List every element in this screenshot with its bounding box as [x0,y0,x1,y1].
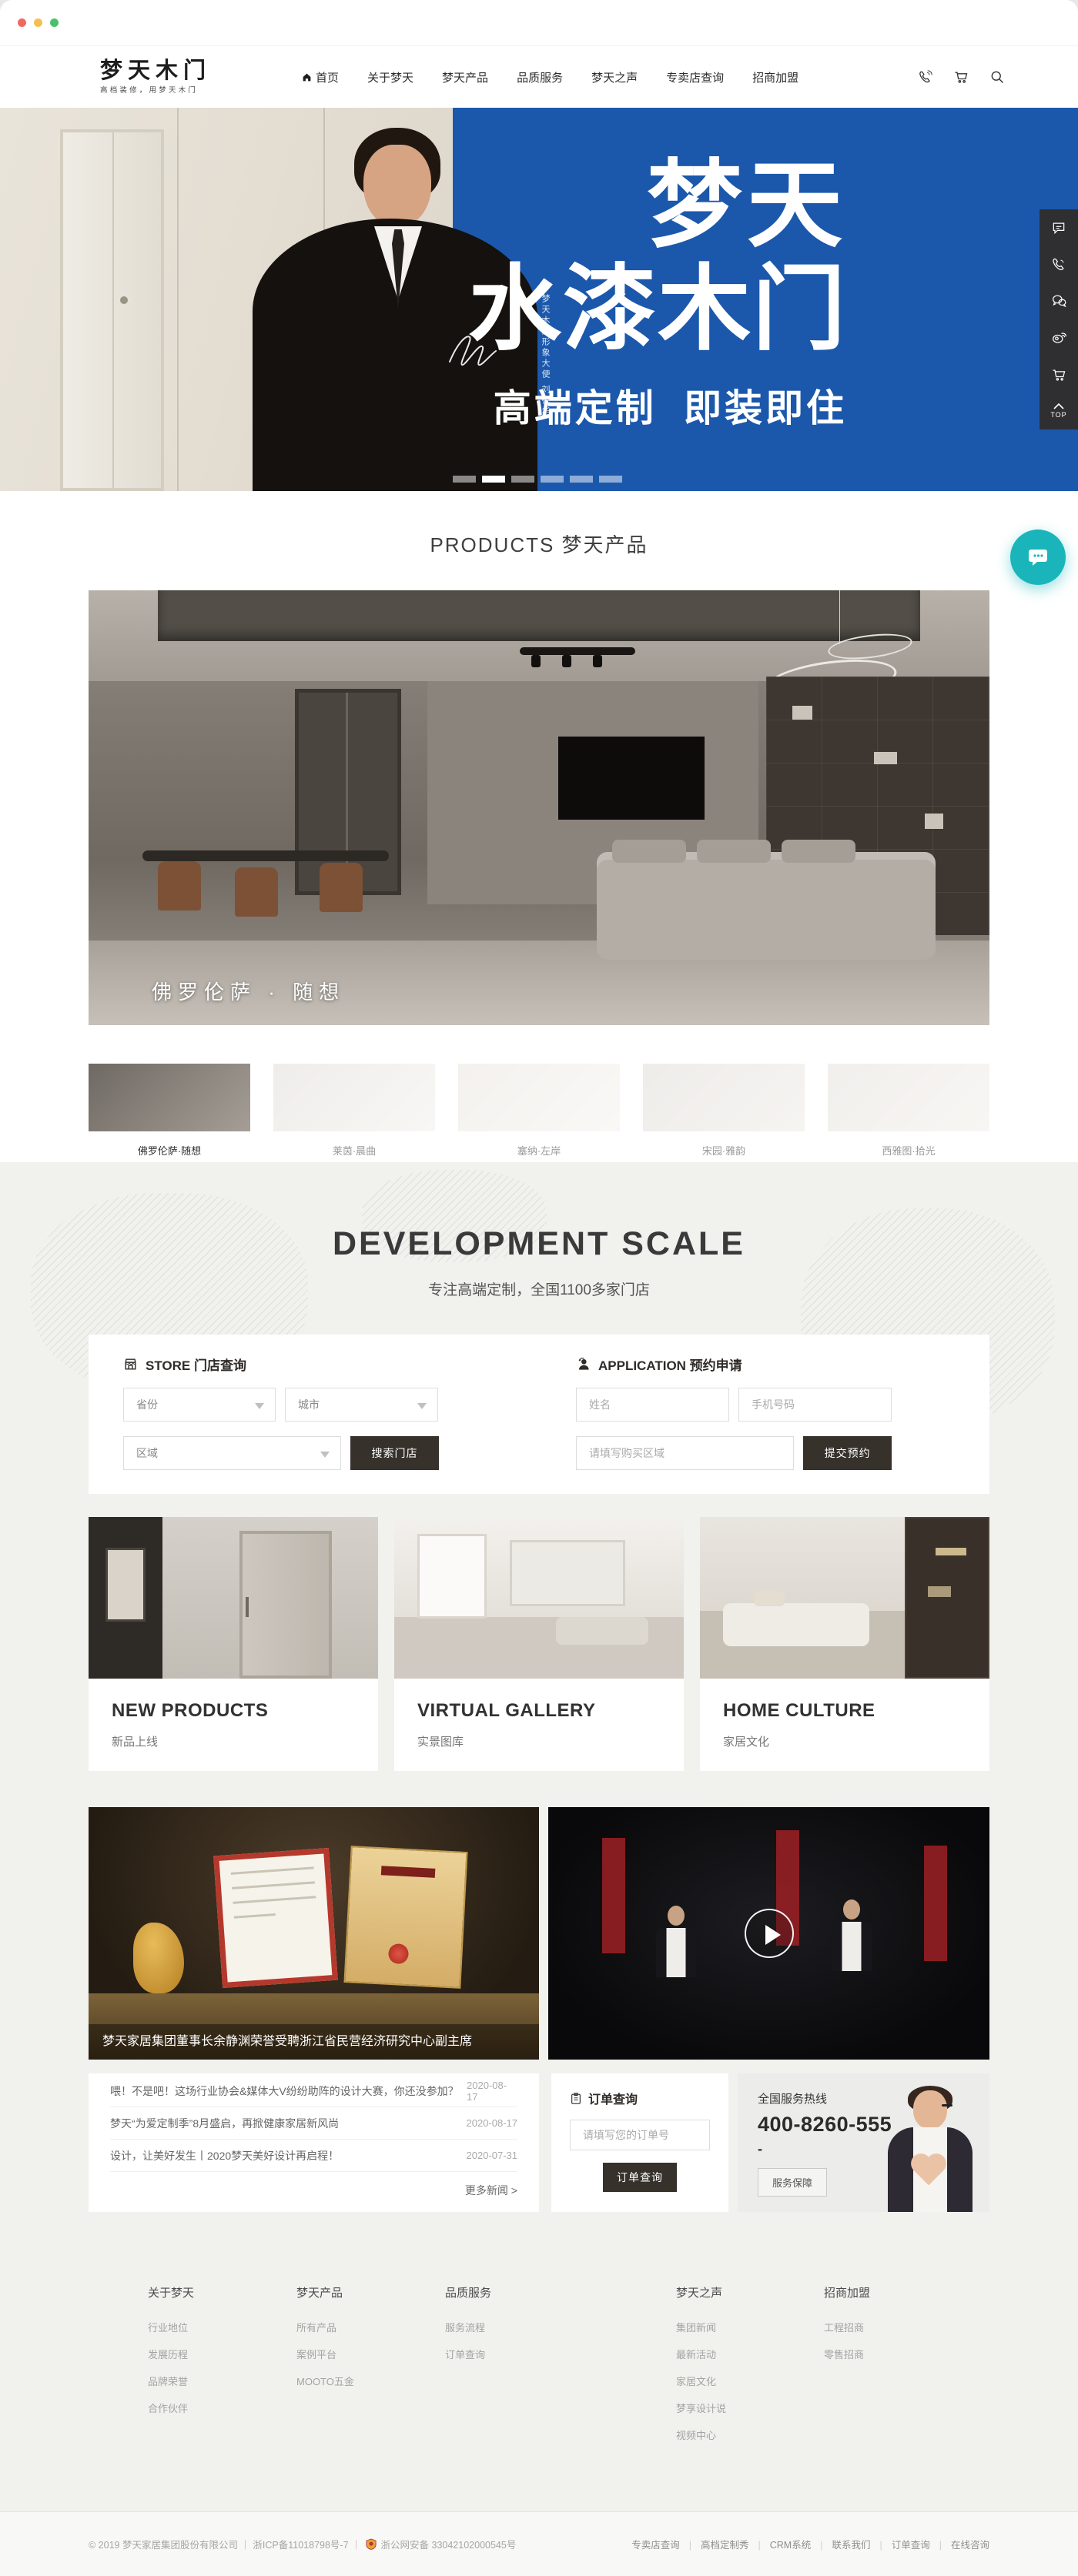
hero-slide-dot[interactable] [453,476,476,483]
chair-shape [320,863,363,912]
nav-label: 招商加盟 [752,69,798,85]
logo-tagline: 高档装修，用梦天木门 [100,87,211,95]
footer-col-title[interactable]: 品质服务 [445,2284,491,2300]
hero-slide-dot[interactable] [511,476,534,483]
bottom-link[interactable]: 专卖店查询 [631,2537,680,2551]
shelf-item-shape [928,1586,951,1597]
nav-label: 梦天产品 [442,69,488,85]
footer-link[interactable]: 品牌荣誉 [148,2374,194,2389]
footer-link[interactable]: 合作伙伴 [148,2401,194,2416]
card-image [700,1517,989,1679]
application-form-title-row: APPLICATION 预约申请 [576,1355,892,1373]
thumbnail-rhine[interactable]: 莱茵·晨曲 [273,1064,435,1158]
order-query-title-row: 订单查询 [570,2089,710,2107]
shelf-item-shape [792,706,812,720]
police-badge-icon [366,2538,377,2550]
development-title: DEVELOPMENT SCALE [0,1162,1078,1263]
bottom-links: 专卖店查询 高档定制秀 CRM系统 联系我们 订单查询 在线咨询 [631,2537,989,2551]
sofa-shape [556,1617,648,1645]
card-image [89,1517,378,1679]
news-video[interactable] [548,1807,989,2060]
footer-col-service: 品质服务 服务流程 订单查询 [445,2284,491,2374]
name-field[interactable] [576,1388,729,1422]
news-item-date: 2020-07-31 [467,2150,518,2161]
news-item[interactable]: 设计，让美好发生丨2020梦天美好设计再启程！ 2020-07-31 [110,2140,517,2172]
shelf-item-shape [874,752,897,764]
footer-col-join: 招商加盟 工程招商 零售招商 [824,2284,870,2374]
pendant-stem-shape [839,590,840,644]
footer-link[interactable]: 订单查询 [445,2347,491,2362]
phone-icon [1051,257,1066,272]
trophy-shape [133,1923,184,1993]
thumbnail-seine[interactable]: 塞纳·左岸 [458,1064,620,1158]
card-title: VIRTUAL GALLERY [417,1700,661,1722]
window-titlebar [0,0,1078,46]
wall-panel-line [177,108,179,491]
bottom-bar: © 2019 梦天家居集团股份有限公司 ｜ 浙ICP备11018798号-7 ｜… [0,2511,1078,2576]
certificate-shape [213,1848,338,1988]
nav-label: 关于梦天 [367,69,413,85]
feature-cards: NEW PRODUCTS 新品上线 VIRTUAL GALLERY 实景图库 [89,1517,989,1771]
browser-window: 梦天木门 高档装修，用梦天木门 首页 关于梦天 梦天产品 品质服务 梦天之声 专… [0,0,1078,2576]
spotlight-track-shape [520,647,635,655]
toolbar-weibo-button[interactable] [1039,319,1078,356]
footer-link[interactable]: 零售招商 [824,2347,870,2362]
main-nav: 首页 关于梦天 梦天产品 品质服务 梦天之声 专卖店查询 招商加盟 [302,69,798,85]
footer-link[interactable]: 发展历程 [148,2347,194,2362]
door-shape [60,129,164,491]
header-icons [918,69,1005,85]
window-frame-shape [510,1540,625,1606]
top-label: TOP [1050,411,1066,419]
art-frame-shape [105,1548,146,1622]
bottom-link[interactable]: 联系我们 [811,2537,870,2551]
back-to-top-button[interactable]: TOP [1039,393,1078,429]
body-shape [832,1922,872,1971]
bottom-link[interactable]: 订单查询 [870,2537,929,2551]
news-item-date: 2020-08-17 [467,2080,517,2103]
new-products-card[interactable]: NEW PRODUCTS 新品上线 [89,1517,378,1771]
clipboard-icon [570,2092,582,2105]
sofa-shape [723,1603,869,1646]
footer-link[interactable]: 服务流程 [445,2320,491,2335]
footer-link[interactable]: MOOTO五金 [296,2374,354,2389]
order-query-card: 订单查询 订单查询 [551,2073,728,2212]
window-minimize-button[interactable] [34,18,42,27]
news-item-title: 梦天“为爱定制季”8月盛启，再掀健康家居新风尚 [110,2116,339,2131]
cart-icon [1051,367,1066,383]
toolbar-phone-button[interactable] [1039,246,1078,283]
card-body: NEW PRODUCTS 新品上线 [89,1679,378,1771]
site-logo[interactable]: 梦天木门 高档装修，用梦天木门 [100,60,211,95]
development-section: DEVELOPMENT SCALE 专注高端定制，全国1100多家门店 STOR… [0,1162,1078,2234]
news-item-date: 2020-08-17 [467,2117,518,2129]
bottom-link[interactable]: 高档定制秀 [680,2537,749,2551]
copyright-row: © 2019 梦天家居集团股份有限公司 ｜ 浙ICP备11018798号-7 ｜… [89,2537,516,2551]
chair-shape [158,861,201,910]
shelf-item-shape [925,814,943,829]
home-culture-card[interactable]: HOME CULTURE 家居文化 [700,1517,989,1771]
thumbnail-seattle[interactable]: 西雅图·拾光 [828,1064,989,1158]
chevron-up-icon [1053,403,1064,409]
footer-link[interactable]: 所有产品 [296,2320,354,2335]
bottom-link[interactable]: CRM系统 [748,2537,811,2551]
chat-bubble-icon [1026,546,1050,569]
phone-field[interactable] [738,1388,892,1422]
store-form-title: STORE 门店查询 [146,1355,246,1374]
products-section-title: PRODUCTS 梦天产品 [0,491,1078,558]
thumbnail-label: 莱茵·晨曲 [273,1143,435,1158]
application-form: APPLICATION 预约申请 提交预约 [576,1355,892,1474]
products-section: PRODUCTS 梦天产品 [0,491,1078,1162]
query-forms-card: STORE 门店查询 省份 城市 区域 搜索门店 APPLICATION 预约申… [89,1335,989,1494]
thumbnail-image [458,1064,620,1131]
news-item[interactable]: 喂！不是吧！这场行业协会&媒体大V纷纷助阵的设计大赛，你还没参加？ 2020-0… [110,2075,517,2107]
police-record-text[interactable]: 浙公网安备 33042102000545号 [381,2537,517,2551]
window-zoom-button[interactable] [50,18,59,27]
shelf-shape [905,1517,989,1679]
nav-item-products[interactable]: 梦天产品 [442,69,488,85]
district-select[interactable]: 区域 [123,1436,341,1470]
speaker-figure [656,1906,696,1977]
bottom-link[interactable]: 在线咨询 [930,2537,989,2551]
purchase-area-field[interactable] [576,1436,794,1470]
hero-subtitle: 高端定制 即装即住 [468,378,847,433]
chair-shape [235,867,278,917]
thumbnail-image [828,1064,989,1131]
news-item-title: 喂！不是吧！这场行业协会&媒体大V纷纷助阵的设计大赛，你还没参加？ [110,2083,456,2099]
card-subtitle: 实景图库 [417,1733,661,1749]
face-shape [363,145,431,228]
door-frame-shape [417,1534,487,1619]
window-close-button[interactable] [18,18,26,27]
site-header: 梦天木门 高档装修，用梦天木门 首页 关于梦天 梦天产品 品质服务 梦天之声 专… [0,46,1078,108]
toolbar-cart-button[interactable] [1039,356,1078,393]
card-body: VIRTUAL GALLERY 实景图库 [394,1679,684,1771]
order-number-field[interactable] [570,2120,710,2150]
footer-col-title[interactable]: 招商加盟 [824,2284,870,2300]
footer-link[interactable]: 集团新闻 [676,2320,726,2335]
nav-item-store-search[interactable]: 专卖店查询 [666,69,724,85]
more-news-link[interactable]: 更多新闻 > [110,2172,517,2209]
product-thumbnails: 佛罗伦萨·随想 莱茵·晨曲 塞纳·左岸 宋园·雅韵 西雅图·拾光 [89,1064,989,1158]
cushion-shape [612,840,686,863]
thumbnail-label: 塞纳·左岸 [458,1143,620,1158]
hero-text: 梦天 水漆木门 高端定制 即装即住 [468,152,847,433]
nav-label: 首页 [316,69,339,85]
wechat-icon [1051,293,1067,309]
hero-slide-dot[interactable] [541,476,564,483]
footer-col-title[interactable]: 梦天之声 [676,2284,726,2300]
side-toolbar: TOP [1039,209,1078,429]
live-chat-button[interactable] [1010,530,1066,585]
city-select[interactable]: 城市 [285,1388,438,1422]
hero-title-line1: 梦天 [468,152,847,259]
spotlight-shape [531,655,541,667]
service-guarantee-button[interactable]: 服务保障 [758,2168,827,2197]
nav-item-home[interactable]: 首页 [302,69,339,85]
nav-item-service[interactable]: 品质服务 [517,69,563,85]
development-subtitle: 专注高端定制，全国1100多家门店 [0,1278,1078,1299]
door-handle-shape [246,1597,249,1617]
footer-link[interactable]: 家居文化 [676,2374,726,2389]
nav-label: 梦天之声 [591,69,638,85]
spotlight-shape [562,655,571,667]
phone-icon[interactable] [918,70,932,85]
store-form-title-row: STORE 门店查询 [123,1355,439,1373]
hotline-panel: 全国服务热线 400-8260-555 - 服务保障 [738,2073,989,2212]
nav-label: 品质服务 [517,69,563,85]
thumbnail-image [273,1064,435,1131]
news-order-row: 喂！不是吧！这场行业协会&媒体大V纷纷助阵的设计大赛，你还没参加？ 2020-0… [89,2073,989,2212]
footer-link[interactable]: 最新活动 [676,2347,726,2362]
hero-slide-dot[interactable] [570,476,593,483]
chat-icon [1051,220,1066,236]
footer-col-title[interactable]: 梦天产品 [296,2284,354,2300]
hero-banner[interactable]: 梦天木门形象大使 刘德华 梦天 水漆木门 高端定制 即装即住 [0,108,1078,491]
thumbnail-florence[interactable]: 佛罗伦萨·随想 [89,1064,250,1158]
thumbnail-label: 佛罗伦萨·随想 [89,1143,250,1158]
order-query-title: 订单查询 [588,2089,638,2107]
head-shape [668,1906,685,1926]
card-body: HOME CULTURE 家居文化 [700,1679,989,1771]
red-seal-shape [388,1943,409,1964]
featured-news-caption: 梦天家居集团董事长余静渊荣誉受聘浙江省民营经济研究中心副主席 [89,2024,539,2060]
door-shape [239,1531,332,1679]
thumbnail-image [643,1064,805,1131]
head-shape [843,1899,860,1919]
spotlight-shape [593,655,602,667]
cushion-shape [754,1591,785,1606]
ceiling-coffer-shape [158,590,920,641]
sofa-shape [597,852,936,960]
news-list: 喂！不是吧！这场行业协会&媒体大V纷纷助阵的设计大赛，你还没参加？ 2020-0… [89,2073,539,2212]
application-form-title: APPLICATION 预约申请 [598,1355,742,1374]
door-knob-shape [120,296,128,304]
footer-link[interactable]: 行业地位 [148,2320,194,2335]
play-button[interactable] [745,1909,794,1958]
nav-label: 专卖店查询 [666,69,724,85]
thumbnail-label: 宋园·雅韵 [643,1143,805,1158]
nav-item-join[interactable]: 招商加盟 [752,69,798,85]
footer-link[interactable]: 梦享设计说 [676,2401,726,2416]
footer-link[interactable]: 视频中心 [676,2428,726,2443]
order-query-button[interactable]: 订单查询 [603,2163,677,2192]
news-media-row: 梦天家居集团董事长余静渊荣誉受聘浙江省民营经济研究中心副主席 [89,1807,989,2060]
red-banner-shape [924,1846,947,1961]
hero-slide-dot-active[interactable] [482,476,505,483]
toolbar-wechat-button[interactable] [1039,282,1078,319]
search-icon[interactable] [989,69,1005,85]
store-search-form: STORE 门店查询 省份 城市 区域 搜索门店 [123,1355,439,1474]
hero-pagination [453,476,622,483]
cart-icon[interactable] [953,69,969,85]
toolbar-chat-button[interactable] [1039,209,1078,246]
card-title: HOME CULTURE [723,1700,966,1722]
card-subtitle: 家居文化 [723,1733,966,1749]
footer-col-about: 关于梦天 行业地位 发展历程 品牌荣誉 合作伙伴 [148,2284,194,2428]
tv-shape [558,737,705,820]
headset-person-icon [576,1357,591,1372]
body-shape [656,1928,696,1977]
shelf-item-shape [936,1548,966,1555]
news-item-title: 设计，让美好发生丨2020梦天美好设计再启程！ [110,2148,339,2163]
red-banner-shape [602,1838,625,1953]
site-footer: 关于梦天 行业地位 发展历程 品牌荣誉 合作伙伴 梦天产品 所有产品 案例平台 … [0,2234,1078,2511]
appointment-certificate-shape [343,1846,467,1989]
news-item[interactable]: 梦天“为爱定制季”8月盛启，再掀健康家居新风尚 2020-08-17 [110,2107,517,2140]
footer-link[interactable]: 案例平台 [296,2347,354,2362]
service-agent-photo [871,2090,986,2212]
province-select-value: 省份 [136,1397,158,1412]
district-select-value: 区域 [136,1445,158,1461]
city-select-value: 城市 [298,1397,320,1412]
cushion-shape [697,840,771,863]
footer-col-voice: 梦天之声 集团新闻 最新活动 家居文化 梦享设计说 视频中心 [676,2284,726,2455]
logo-title: 梦天木门 [100,60,211,82]
nav-item-voice[interactable]: 梦天之声 [591,69,638,85]
thumbnail-songyuan[interactable]: 宋园·雅韵 [643,1064,805,1158]
home-icon [302,72,312,82]
hero-title-line2: 水漆木门 [468,259,847,358]
card-title: NEW PRODUCTS [112,1700,355,1722]
featured-news-photo[interactable]: 梦天家居集团董事长余静渊荣誉受聘浙江省民营经济研究中心副主席 [89,1807,539,2060]
cushion-shape [782,840,855,863]
headset-mic-shape [942,2104,952,2107]
card-image [394,1517,684,1679]
thumbnail-image [89,1064,250,1131]
head-shape [913,2090,947,2129]
copyright-text: © 2019 梦天家居集团股份有限公司 ｜ 浙ICP备11018798号-7 ｜ [89,2537,361,2551]
featured-caption: 佛罗伦萨 · 随想 [152,977,345,1005]
footer-col-products: 梦天产品 所有产品 案例平台 MOOTO五金 [296,2284,354,2401]
nav-item-about[interactable]: 关于梦天 [367,69,413,85]
dining-table-shape [142,850,389,861]
search-store-button[interactable]: 搜索门店 [350,1436,439,1470]
thumbnail-label: 西雅图·拾光 [828,1143,989,1158]
province-select[interactable]: 省份 [123,1388,276,1422]
card-subtitle: 新品上线 [112,1733,355,1749]
footer-col-title[interactable]: 关于梦天 [148,2284,194,2300]
featured-product-image[interactable]: 佛罗伦萨 · 随想 [89,590,989,1025]
store-icon [123,1357,138,1372]
virtual-gallery-card[interactable]: VIRTUAL GALLERY 实景图库 [394,1517,684,1771]
hero-slide-dot[interactable] [599,476,622,483]
speaker-figure [832,1899,872,1971]
weibo-icon [1051,329,1067,346]
footer-link[interactable]: 工程招商 [824,2320,870,2335]
submit-application-button[interactable]: 提交预约 [803,1436,892,1470]
